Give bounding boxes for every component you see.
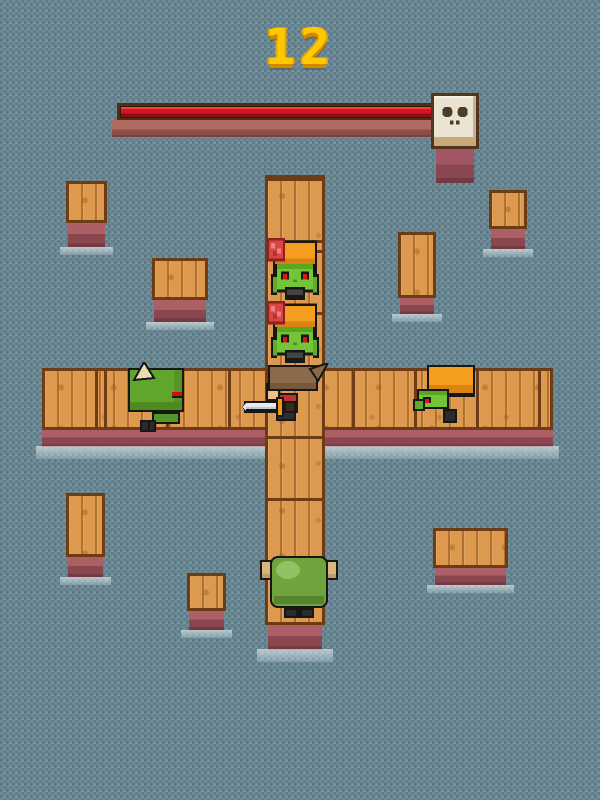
platform-wood bbox=[66, 493, 105, 557]
platform-base bbox=[400, 298, 434, 314]
skull-icon bbox=[437, 97, 473, 135]
platform-base bbox=[154, 300, 206, 322]
floating-platform bbox=[187, 573, 226, 638]
floating-platform bbox=[66, 181, 107, 255]
player-hero[interactable] bbox=[242, 363, 330, 425]
enemy-horned-monster[interactable] bbox=[124, 362, 192, 432]
platform-wood bbox=[433, 528, 508, 568]
platform-foam bbox=[146, 322, 214, 330]
platform-foam bbox=[60, 247, 113, 255]
boss-health-bar-base bbox=[112, 120, 439, 137]
skull-tile-base bbox=[436, 149, 474, 183]
enemy-zombie-top-1[interactable] bbox=[267, 238, 323, 300]
platform-wood bbox=[66, 181, 107, 223]
platform-wood bbox=[152, 258, 208, 300]
floating-platform bbox=[489, 190, 527, 257]
platform-base bbox=[491, 229, 525, 249]
floating-platform bbox=[152, 258, 208, 330]
platform-foam bbox=[392, 314, 442, 322]
pier-column-foam bbox=[257, 649, 333, 662]
enemy-zombie-right[interactable] bbox=[413, 363, 479, 427]
floating-platform bbox=[398, 232, 436, 322]
platform-base bbox=[189, 611, 224, 630]
platform-base bbox=[435, 568, 506, 585]
platform-foam bbox=[60, 577, 111, 585]
platform-wood bbox=[187, 573, 226, 611]
floating-platform bbox=[433, 528, 508, 593]
floating-platform bbox=[66, 493, 105, 585]
boss-health-bar bbox=[117, 103, 435, 121]
platform-foam bbox=[181, 630, 232, 638]
enemy-zombie-top-2[interactable] bbox=[267, 301, 323, 363]
skull-tile-shelf bbox=[434, 137, 476, 146]
platform-base bbox=[68, 557, 103, 577]
skull-tile bbox=[431, 93, 479, 149]
boss-health-fill bbox=[121, 107, 431, 117]
platform-base bbox=[68, 223, 105, 247]
pier-column-base bbox=[268, 625, 322, 650]
score-display: 12 bbox=[0, 18, 600, 76]
platform-foam bbox=[427, 585, 514, 593]
game-stage[interactable]: 12 bbox=[0, 0, 600, 800]
platform-foam bbox=[483, 249, 533, 257]
platform-wood bbox=[489, 190, 527, 229]
enemy-blob-bottom[interactable] bbox=[260, 556, 338, 618]
platform-wood bbox=[398, 232, 436, 298]
